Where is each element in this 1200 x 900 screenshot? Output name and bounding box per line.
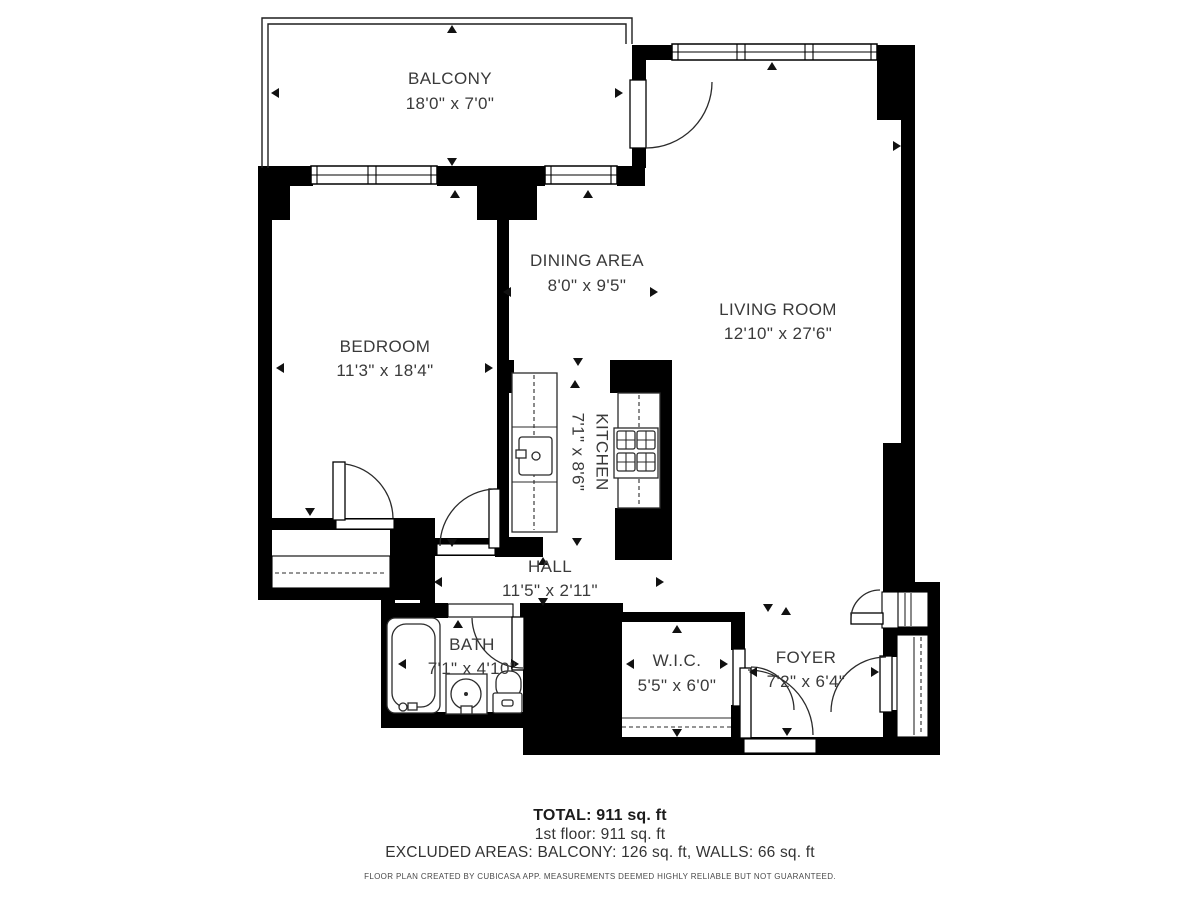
dimension-arrow (453, 620, 463, 628)
dimension-arrow (570, 380, 580, 388)
room-dims-bedroom: 11'3" x 18'4" (336, 361, 433, 380)
dimension-arrow (650, 287, 658, 297)
bedroom-closet-door (333, 462, 394, 529)
entry-nook (898, 592, 928, 627)
bath-sink (446, 674, 487, 714)
walls (258, 45, 940, 755)
dimension-arrow (447, 25, 457, 33)
dimension-arrow (871, 667, 879, 677)
dimension-arrow (767, 62, 777, 70)
kitchen-counter-right (614, 393, 660, 508)
dimension-arrow (672, 729, 682, 737)
excluded-areas-text: EXCLUDED AREAS: BALCONY: 126 sq. ft, WAL… (385, 844, 815, 861)
dimension-arrow (782, 728, 792, 736)
footer: TOTAL: 911 sq. ft 1st floor: 911 sq. ft … (364, 807, 836, 881)
room-dims-balcony: 18'0" x 7'0" (406, 94, 495, 113)
dimension-arrow (763, 604, 773, 612)
dimension-arrow (672, 625, 682, 633)
floor-plan-page: BALCONY 18'0" x 7'0" BEDROOM 11'3" x 18'… (0, 0, 1200, 900)
dimension-arrow (447, 158, 457, 166)
room-label-bedroom: BEDROOM (340, 337, 431, 356)
room-dims-kitchen: 7'1" x 8'6" (569, 413, 588, 492)
room-dims-foyer: 7'2" x 6'4" (767, 672, 846, 691)
dimension-arrow (434, 577, 442, 587)
disclaimer-text: FLOOR PLAN CREATED BY CUBICASA APP. MEAS… (364, 872, 836, 881)
stove (614, 428, 658, 478)
dimension-arrow (276, 363, 284, 373)
dimension-arrow (485, 363, 493, 373)
dimension-arrow (572, 538, 582, 546)
total-area-text: TOTAL: 911 sq. ft (533, 807, 667, 824)
dimension-arrow (305, 508, 315, 516)
living-room-window (672, 44, 877, 60)
floor-area-text: 1st floor: 911 sq. ft (535, 826, 666, 843)
windows (311, 44, 877, 184)
dining-window (545, 166, 617, 184)
dimension-arrow (450, 190, 460, 198)
room-dims-living: 12'10" x 27'6" (724, 324, 832, 343)
room-dims-dining: 8'0" x 9'5" (548, 276, 627, 295)
room-label-kitchen: KITCHEN (593, 413, 612, 490)
dimension-arrow (583, 190, 593, 198)
room-label-dining: DINING AREA (530, 251, 644, 270)
dimension-arrow (720, 659, 728, 669)
dimension-arrow (573, 358, 583, 366)
room-label-living: LIVING ROOM (719, 300, 837, 319)
entry-door (851, 590, 899, 628)
kitchen-sink (516, 437, 552, 475)
room-dims-bath: 7'1" x 4'10" (428, 659, 517, 678)
bedroom-hall-door (437, 489, 500, 555)
wic-shelf (622, 718, 731, 727)
dimension-arrow (656, 577, 664, 587)
dimension-arrow (271, 88, 279, 98)
balcony-door (630, 80, 712, 148)
room-label-foyer: FOYER (776, 648, 837, 667)
room-dims-hall: 11'5" x 2'11" (502, 581, 598, 600)
balcony-railing (262, 18, 632, 168)
kitchen-counter-left (512, 373, 557, 532)
dimension-arrow (781, 607, 791, 615)
room-label-hall: HALL (528, 557, 572, 576)
dimension-arrow (615, 88, 623, 98)
foyer-closet (897, 635, 928, 737)
dimension-arrow (893, 141, 901, 151)
room-label-wic: W.I.C. (653, 651, 702, 670)
bedroom-closet (272, 556, 390, 588)
bedroom-window (311, 166, 437, 184)
floor-plan-canvas: BALCONY 18'0" x 7'0" BEDROOM 11'3" x 18'… (0, 0, 1200, 900)
room-labels: BALCONY 18'0" x 7'0" BEDROOM 11'3" x 18'… (336, 69, 845, 695)
room-label-bath: BATH (449, 635, 495, 654)
room-dims-wic: 5'5" x 6'0" (638, 676, 717, 695)
dimension-arrow (626, 659, 634, 669)
room-label-balcony: BALCONY (408, 69, 492, 88)
